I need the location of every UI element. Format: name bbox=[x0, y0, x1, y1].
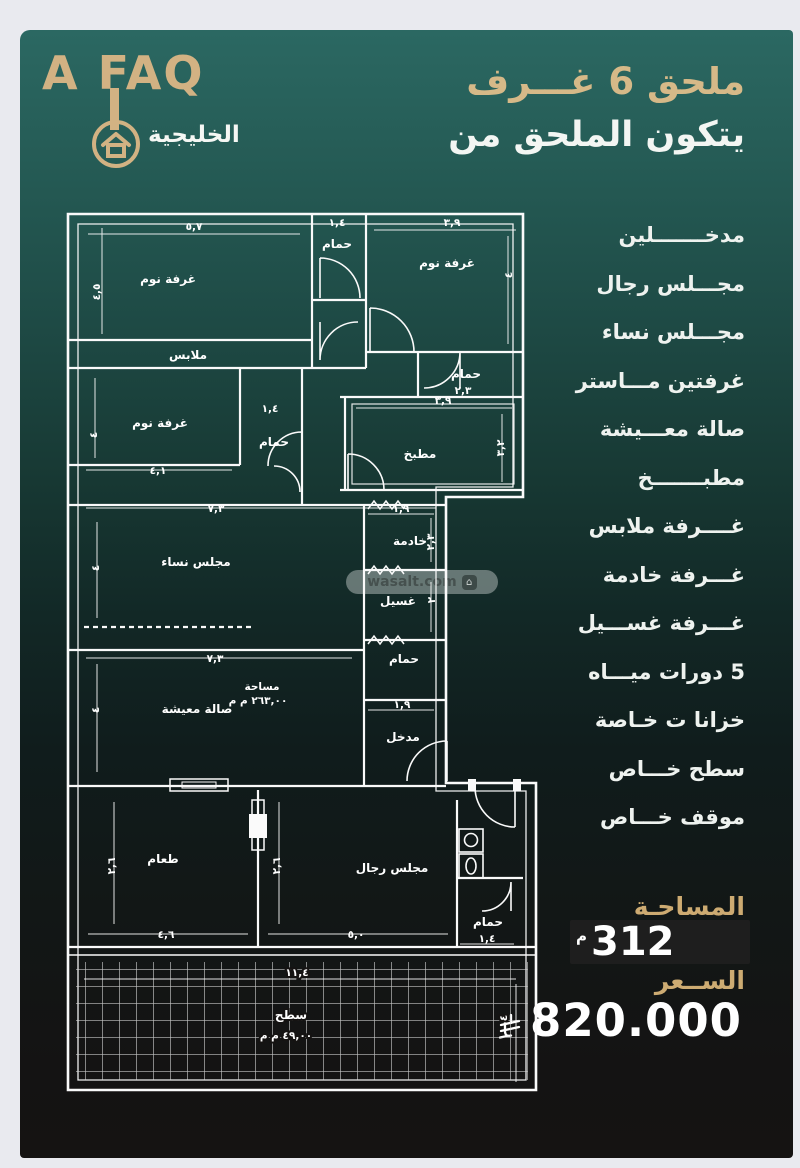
dim-label: ٢,٦ bbox=[271, 857, 283, 874]
room-label-bath: حمام bbox=[259, 435, 289, 450]
dim-label: ٤ bbox=[90, 707, 102, 713]
room-label-maid: خادمة bbox=[393, 534, 427, 548]
room-label-bath: حمام bbox=[389, 652, 419, 667]
room-label-men-majlis: مجلس رجال bbox=[356, 861, 429, 875]
room-label-dining: طعام bbox=[147, 852, 178, 867]
room-label-entry: مدخل bbox=[386, 730, 420, 744]
living-area-value: ٢٦٣,٠٠ م م bbox=[229, 695, 288, 707]
roof-area-value: ٤٩,٠٠ م م bbox=[260, 1030, 312, 1042]
dim-label: ٤,١ bbox=[150, 465, 167, 477]
dim-label: ٢,٦ bbox=[106, 857, 118, 874]
room-label-women-majlis: مجلس نساء bbox=[161, 555, 230, 569]
dim-label: ٥,٠ bbox=[348, 929, 365, 941]
dim-label: ٤ bbox=[498, 1015, 510, 1021]
room-label-bath: حمام bbox=[473, 915, 503, 930]
room-label-bedroom: غرفة نوم bbox=[419, 256, 475, 271]
dim-label: ١١,٤ bbox=[285, 967, 308, 979]
room-label-laundry: غسيل bbox=[380, 594, 416, 608]
dim-label: ٧,٣ bbox=[208, 503, 225, 515]
floorplan-walls bbox=[68, 214, 536, 1090]
room-label-bath: حمام bbox=[322, 237, 352, 252]
floorplan-windows bbox=[368, 501, 404, 644]
floorplan-dimension-lines bbox=[84, 228, 516, 1082]
dim-label: ١,٤ bbox=[329, 217, 346, 229]
dim-label: ٤ bbox=[503, 272, 515, 278]
dim-label: ١,٩ bbox=[393, 503, 410, 515]
flyer-page: { "brand": {"name": "A FAQ", "sub": "الخ… bbox=[0, 0, 800, 1168]
room-label-roof: سطح bbox=[275, 1008, 307, 1022]
dim-label: ٣,٩ bbox=[444, 217, 461, 229]
room-label-bedroom: غرفة نوم bbox=[140, 272, 196, 287]
dim-label: ٢ bbox=[426, 596, 438, 603]
room-label-bedroom: غرفة نوم bbox=[132, 416, 188, 431]
dim-label: ١,٤ bbox=[479, 933, 496, 945]
dim-label: ٤,٥ bbox=[91, 284, 103, 301]
dim-label: ٤,٦ bbox=[158, 929, 175, 941]
dim-label: ١,٩ bbox=[394, 699, 411, 711]
room-label-living: صالة معيشة bbox=[162, 702, 233, 716]
dim-label: ٢,٣ bbox=[455, 385, 472, 397]
floorplan-fixtures bbox=[459, 829, 483, 878]
room-label-kitchen: مطبخ bbox=[404, 447, 437, 461]
dim-label: ٧,٣ bbox=[207, 653, 224, 665]
dim-label: ٤ bbox=[90, 565, 102, 571]
dim-label: ٢,٣ bbox=[425, 533, 437, 550]
dim-label: ٣,٢ bbox=[495, 439, 507, 456]
dim-label: ٣,٩ bbox=[435, 395, 452, 407]
dim-label: ٤ bbox=[88, 432, 100, 438]
living-area-label: مساحة bbox=[244, 681, 279, 693]
room-label-closet: ملابس bbox=[169, 348, 207, 362]
floorplan: غرفة نوم ٥,٧ ٤,٥ ١,٤ حمام غرفة نوم ٣,٩ ٤… bbox=[0, 0, 800, 1168]
floorplan-doors bbox=[268, 258, 521, 911]
dim-label: ٥,٧ bbox=[186, 221, 203, 233]
dim-label: ١,٤ bbox=[262, 403, 279, 415]
room-label-bath: حمام bbox=[451, 367, 481, 382]
